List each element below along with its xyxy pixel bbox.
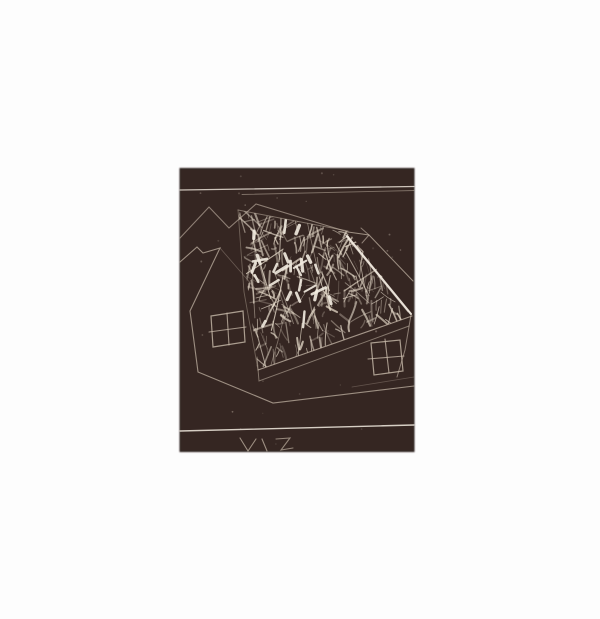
print-artwork [0,0,600,619]
scanned-page [0,0,600,619]
print-plate-group [180,169,414,452]
ink-plate [180,169,414,452]
